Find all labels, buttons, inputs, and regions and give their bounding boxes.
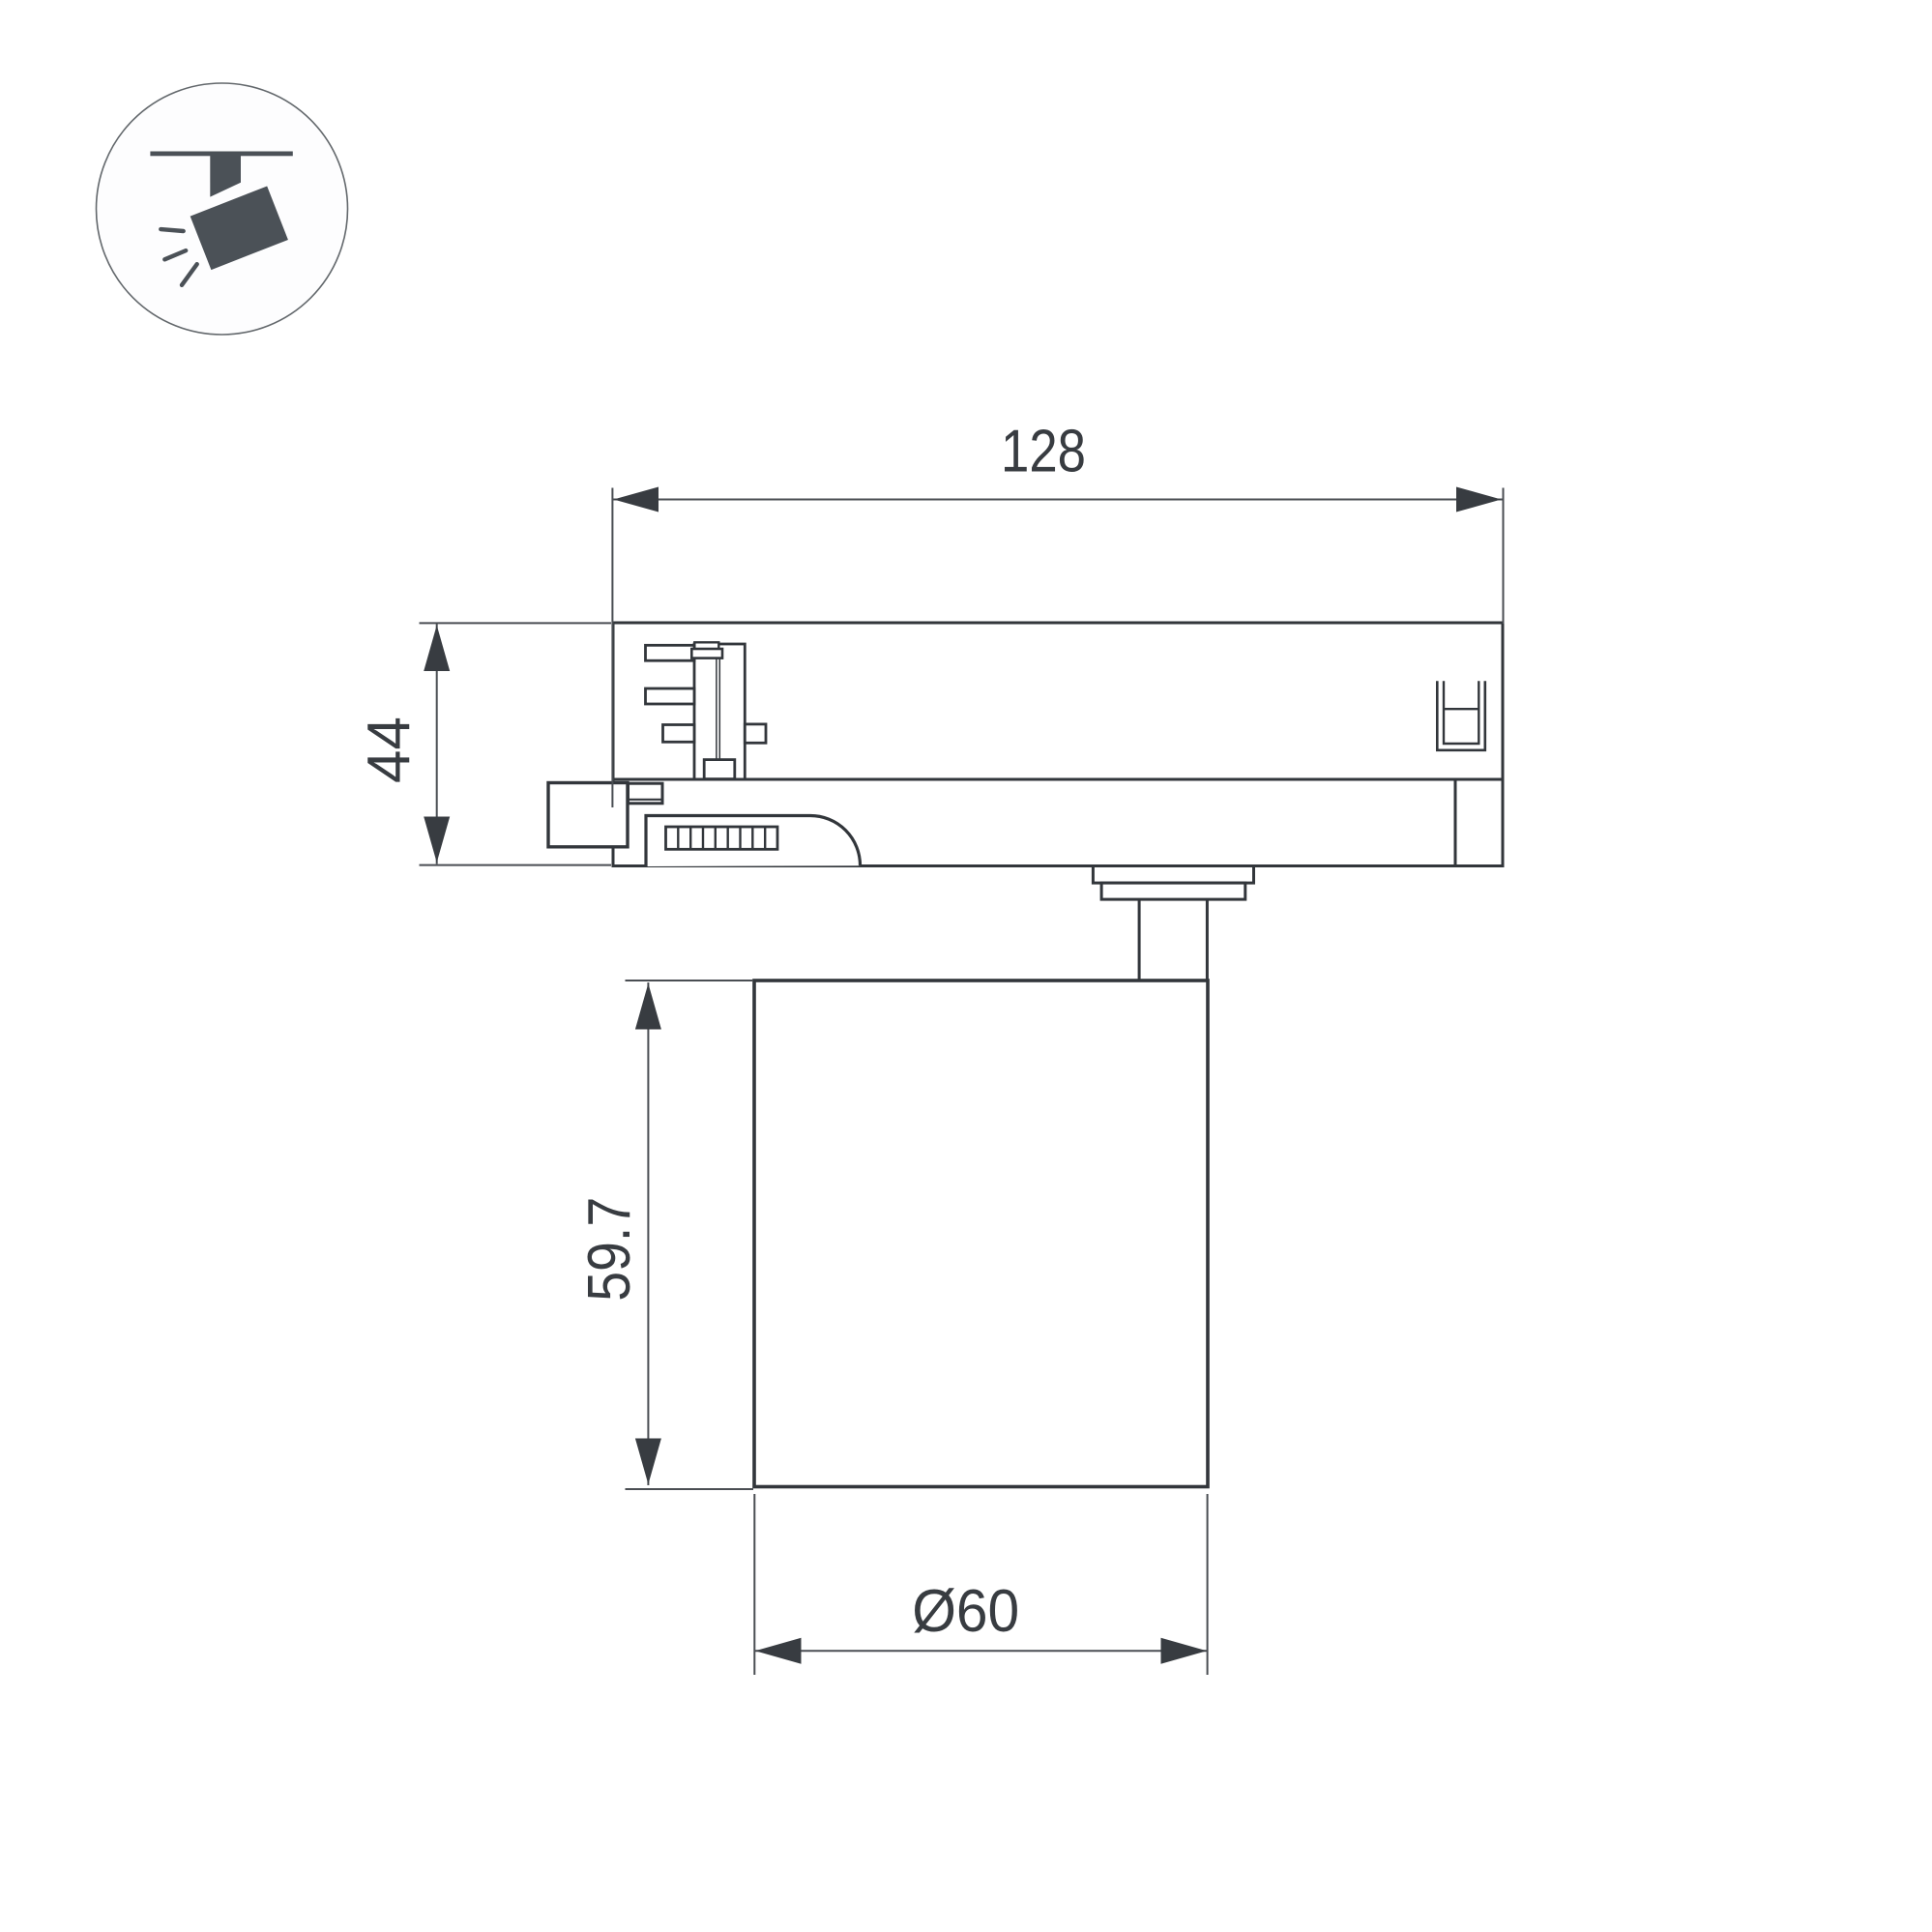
svg-text:44: 44 xyxy=(356,717,423,783)
svg-text:Ø60: Ø60 xyxy=(912,1578,1019,1645)
svg-text:59.7: 59.7 xyxy=(576,1197,643,1302)
svg-text:128: 128 xyxy=(1001,419,1086,485)
